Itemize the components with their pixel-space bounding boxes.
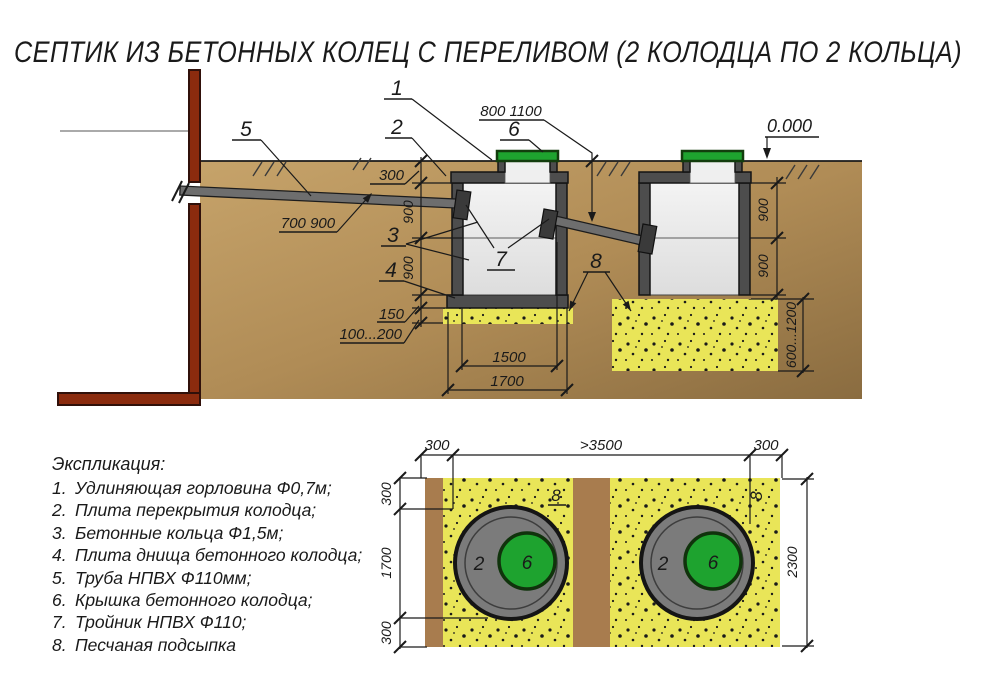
- well2-neck-interior: [690, 161, 735, 183]
- dim-bedding-thickness: 100...200: [339, 326, 402, 343]
- legend-item-num: 7.: [52, 612, 67, 632]
- legend-item-text: Труба НПВХ Ф110мм;: [75, 568, 252, 588]
- callout-7-label: 7: [495, 248, 508, 271]
- well1-neck-wall-left: [498, 161, 505, 172]
- well1-green-cover: [497, 151, 558, 161]
- house-wall: [58, 70, 200, 405]
- well2-green-cover: [682, 151, 743, 161]
- legend-item-text: Плита днища бетонного колодца;: [75, 545, 362, 565]
- legend-item-num: 1.: [52, 478, 67, 498]
- dim-edge-right: 300: [753, 437, 779, 454]
- dim-well2-ring2-height: 900: [755, 254, 771, 278]
- well1-bottom-slab: [447, 295, 568, 308]
- plan-view: 2 6 2 6 8 8 300 >3500 300: [378, 437, 814, 653]
- elevation-value: 0.000: [767, 116, 812, 136]
- legend-item-num: 3.: [52, 523, 67, 543]
- legend-item-num: 6.: [52, 590, 67, 610]
- dim-offset-bottom: 300: [378, 621, 394, 645]
- well1-interior: [463, 183, 556, 295]
- well2-section: [639, 151, 751, 295]
- well2-plan: 2 6: [641, 507, 753, 619]
- legend-item-num: 5.: [52, 568, 67, 588]
- plan-soil-strip-middle: [573, 478, 610, 647]
- callout-6-label: 6: [508, 118, 520, 141]
- legend-heading: Экспликация:: [52, 454, 165, 474]
- legend-item-num: 4.: [52, 545, 67, 565]
- dim-span: >3500: [580, 437, 623, 454]
- legend-item-text: Бетонные кольца Ф1,5м;: [75, 523, 283, 543]
- legend-item-text: Песчаная подсыпка: [75, 635, 236, 655]
- callout-2-label: 2: [390, 116, 403, 139]
- dim-edge-left: 300: [424, 437, 450, 454]
- legend: Экспликация: 1. Удлиняющая горловина Ф0,…: [51, 454, 362, 655]
- plan-right-dimensions: 2300: [782, 473, 814, 652]
- dim-ring1-height: 900: [400, 200, 416, 224]
- legend-item-text: Крышка бетонного колодца;: [75, 590, 313, 610]
- well2-ring-wall-right: [739, 183, 750, 295]
- dim-well2-ring1-height: 900: [755, 198, 771, 222]
- septic-diagram: СЕПТИК ИЗ БЕТОННЫХ КОЛЕЦ С ПЕРЕЛИВОМ (2 …: [0, 0, 987, 685]
- dim-plan-height: 2300: [784, 546, 800, 578]
- well2-cover-number: 6: [708, 553, 719, 574]
- section-view: 300 900 900 150 100...200 900 900: [58, 70, 862, 405]
- well1-ring-number: 2: [473, 554, 485, 575]
- well1-ring-wall-right: [556, 183, 567, 295]
- callout-4-label: 4: [385, 259, 397, 282]
- legend-item-text: Плита перекрытия колодца;: [75, 500, 316, 520]
- dim-pit-depth: 600...1200: [783, 302, 799, 368]
- dim-well-outer: 1700: [378, 547, 394, 578]
- well1-plan: 2 6: [455, 507, 567, 619]
- callout-3-label: 3: [387, 224, 399, 247]
- dim-cover-depth: 300: [379, 167, 405, 184]
- legend-item-num: 8.: [52, 635, 67, 655]
- well1-neck-interior: [505, 161, 550, 183]
- plan-soil-strip-left: [425, 478, 443, 647]
- well2-ring-number: 2: [657, 554, 669, 575]
- well1-cover-number: 6: [522, 553, 533, 574]
- drawing-page: СЕПТИК ИЗ БЕТОННЫХ КОЛЕЦ С ПЕРЕЛИВОМ (2 …: [0, 0, 987, 685]
- sand-pit-well2: [612, 299, 778, 371]
- dim-slab-thickness: 150: [379, 306, 405, 323]
- dim-ring-outer-width: 1700: [490, 373, 524, 390]
- dim-ring-inner-width: 1500: [492, 349, 526, 366]
- plan-sand-callout-left: 8: [551, 486, 561, 505]
- dim-inlet-pipe-depth: 700 900: [281, 215, 336, 232]
- callout-1-label: 1: [391, 77, 403, 100]
- legend-item-text: Удлиняющая горловина Ф0,7м;: [74, 478, 332, 498]
- legend-item-num: 2.: [51, 500, 67, 520]
- callout-5-label: 5: [240, 118, 252, 141]
- well2-neck-wall-right: [735, 161, 742, 172]
- well1-neck-wall-right: [550, 161, 557, 172]
- dim-overflow-pipe-depth: 800 1100: [480, 103, 542, 120]
- dim-ring2-height: 900: [400, 256, 416, 280]
- legend-item-text: Тройник НПВХ Ф110;: [75, 612, 247, 632]
- callout-8-label: 8: [590, 250, 602, 273]
- dim-offset-top: 300: [378, 482, 394, 506]
- elevation-mark: 0.000: [763, 116, 819, 159]
- page-title: СЕПТИК ИЗ БЕТОННЫХ КОЛЕЦ С ПЕРЕЛИВОМ (2 …: [14, 36, 962, 69]
- well2-interior: [650, 183, 739, 295]
- well2-neck-wall-left: [683, 161, 690, 172]
